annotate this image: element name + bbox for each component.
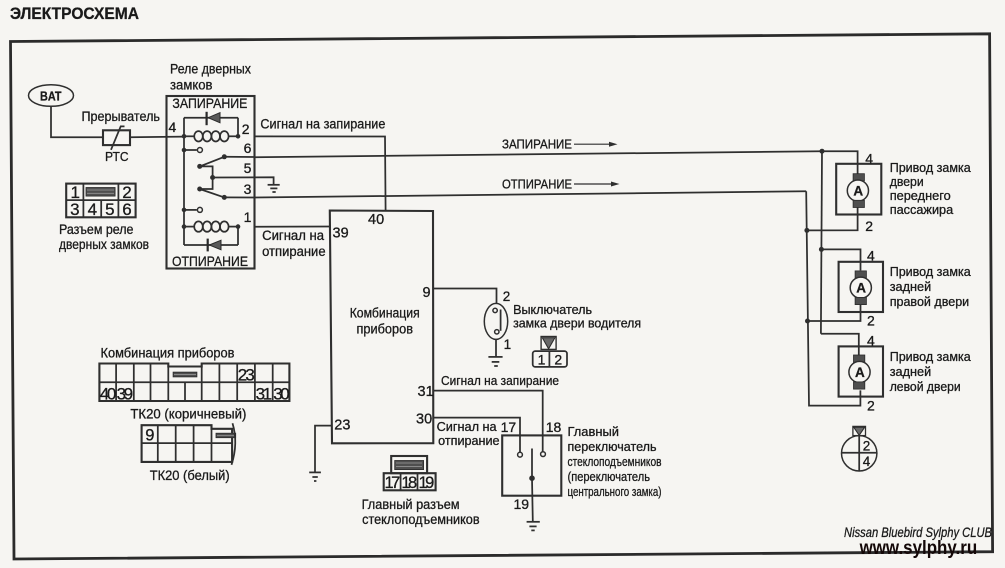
- svg-text:39: 39: [117, 384, 134, 403]
- svg-text:2: 2: [554, 351, 562, 367]
- svg-text:17: 17: [385, 474, 401, 492]
- svg-text:3: 3: [244, 181, 252, 197]
- svg-text:17: 17: [501, 419, 517, 435]
- svg-text:2: 2: [242, 121, 250, 137]
- svg-text:4: 4: [863, 454, 871, 469]
- svg-text:2: 2: [867, 397, 875, 413]
- svg-text:Сигнал на запирание: Сигнал на запирание: [441, 373, 559, 388]
- svg-text:4: 4: [865, 150, 873, 166]
- svg-text:6: 6: [244, 140, 252, 156]
- svg-text:1: 1: [244, 209, 252, 225]
- svg-text:9: 9: [145, 427, 154, 445]
- svg-text:правой двери: правой двери: [890, 294, 970, 309]
- svg-text:отпирание: отпирание: [438, 433, 500, 448]
- svg-text:ЗАПИРАНИЕ: ЗАПИРАНИЕ: [172, 95, 247, 111]
- svg-text:левой двери: левой двери: [890, 379, 961, 394]
- svg-text:19: 19: [514, 496, 530, 512]
- svg-text:39: 39: [333, 225, 349, 241]
- svg-text:31: 31: [418, 384, 434, 400]
- svg-text:центрального замка): центрального замка): [568, 484, 662, 499]
- svg-text:Главный: Главный: [568, 424, 620, 439]
- svg-text:5: 5: [244, 160, 252, 176]
- svg-text:6: 6: [122, 200, 131, 219]
- svg-text:A: A: [856, 281, 866, 296]
- svg-text:отпирание: отпирание: [262, 244, 326, 259]
- svg-text:A: A: [853, 184, 863, 199]
- svg-text:2: 2: [865, 218, 873, 234]
- svg-text:4: 4: [88, 200, 97, 219]
- svg-text:задней: задней: [890, 364, 932, 379]
- svg-text:приборов: приборов: [357, 321, 414, 336]
- svg-text:пассажира: пассажира: [890, 202, 954, 217]
- svg-text:переключатель: переключатель: [568, 439, 657, 454]
- svg-text:18: 18: [546, 419, 562, 435]
- svg-text:BAT: BAT: [40, 89, 62, 104]
- svg-text:18: 18: [401, 474, 417, 492]
- svg-text:замка двери водителя: замка двери водителя: [513, 315, 641, 330]
- svg-text:19: 19: [419, 474, 435, 492]
- svg-text:Сигнал на запирание: Сигнал на запирание: [260, 116, 385, 131]
- svg-text:Прерыватель: Прерыватель: [82, 109, 161, 124]
- svg-text:www.sylphy.ru: www.sylphy.ru: [859, 537, 977, 559]
- svg-text:двери: двери: [890, 174, 924, 189]
- svg-text:Сигнал на: Сигнал на: [437, 419, 498, 434]
- svg-text:4: 4: [867, 333, 875, 349]
- svg-text:(переключатель: (переключатель: [568, 469, 651, 484]
- svg-text:Привод замка: Привод замка: [890, 264, 972, 279]
- svg-text:4: 4: [169, 119, 177, 135]
- svg-text:дверных замков: дверных замков: [59, 237, 149, 252]
- svg-text:замков: замков: [170, 78, 213, 93]
- svg-text:2: 2: [503, 289, 511, 304]
- svg-text:ОТПИРАНИЕ: ОТПИРАНИЕ: [502, 178, 572, 192]
- svg-text:1: 1: [504, 337, 512, 352]
- svg-text:30: 30: [273, 384, 290, 403]
- svg-text:30: 30: [416, 412, 432, 428]
- svg-text:переднего: переднего: [890, 188, 951, 203]
- svg-text:3: 3: [70, 200, 79, 219]
- svg-text:Комбинация: Комбинация: [350, 306, 420, 321]
- svg-text:23: 23: [238, 366, 255, 385]
- svg-text:Главный разъем: Главный разъем: [362, 497, 460, 512]
- svg-text:ЭЛЕКТРОСХЕМА: ЭЛЕКТРОСХЕМА: [10, 5, 139, 23]
- svg-text:задней: задней: [890, 279, 932, 294]
- svg-text:31: 31: [256, 384, 273, 403]
- svg-text:Разъем реле: Разъем реле: [59, 222, 134, 237]
- svg-text:Сигнал на: Сигнал на: [262, 228, 324, 243]
- svg-text:9: 9: [423, 285, 431, 301]
- svg-text:2: 2: [867, 313, 875, 329]
- svg-text:Привод замка: Привод замка: [890, 349, 972, 364]
- svg-text:ТК20 (белый): ТК20 (белый): [150, 467, 230, 483]
- svg-text:Комбинация приборов: Комбинация приборов: [101, 346, 235, 361]
- svg-text:23: 23: [334, 418, 350, 434]
- svg-text:A: A: [855, 365, 865, 380]
- svg-text:1: 1: [538, 351, 546, 367]
- svg-text:стеклоподъемников: стеклоподъемников: [362, 512, 480, 527]
- svg-text:Реле дверных: Реле дверных: [170, 62, 251, 77]
- svg-text:стеклоподъемников: стеклоподъемников: [568, 454, 662, 469]
- svg-text:ТК20 (коричневый): ТК20 (коричневый): [130, 405, 246, 421]
- svg-text:2: 2: [863, 439, 871, 454]
- svg-text:РТС: РТС: [105, 149, 129, 164]
- svg-text:ЗАПИРАНИЕ: ЗАПИРАНИЕ: [502, 138, 572, 152]
- svg-text:40: 40: [368, 212, 384, 228]
- svg-text:40: 40: [100, 384, 117, 403]
- svg-text:Привод замка: Привод замка: [890, 160, 972, 175]
- svg-text:ОТПИРАНИЕ: ОТПИРАНИЕ: [172, 253, 248, 269]
- svg-text:4: 4: [867, 247, 875, 263]
- svg-text:5: 5: [105, 200, 114, 219]
